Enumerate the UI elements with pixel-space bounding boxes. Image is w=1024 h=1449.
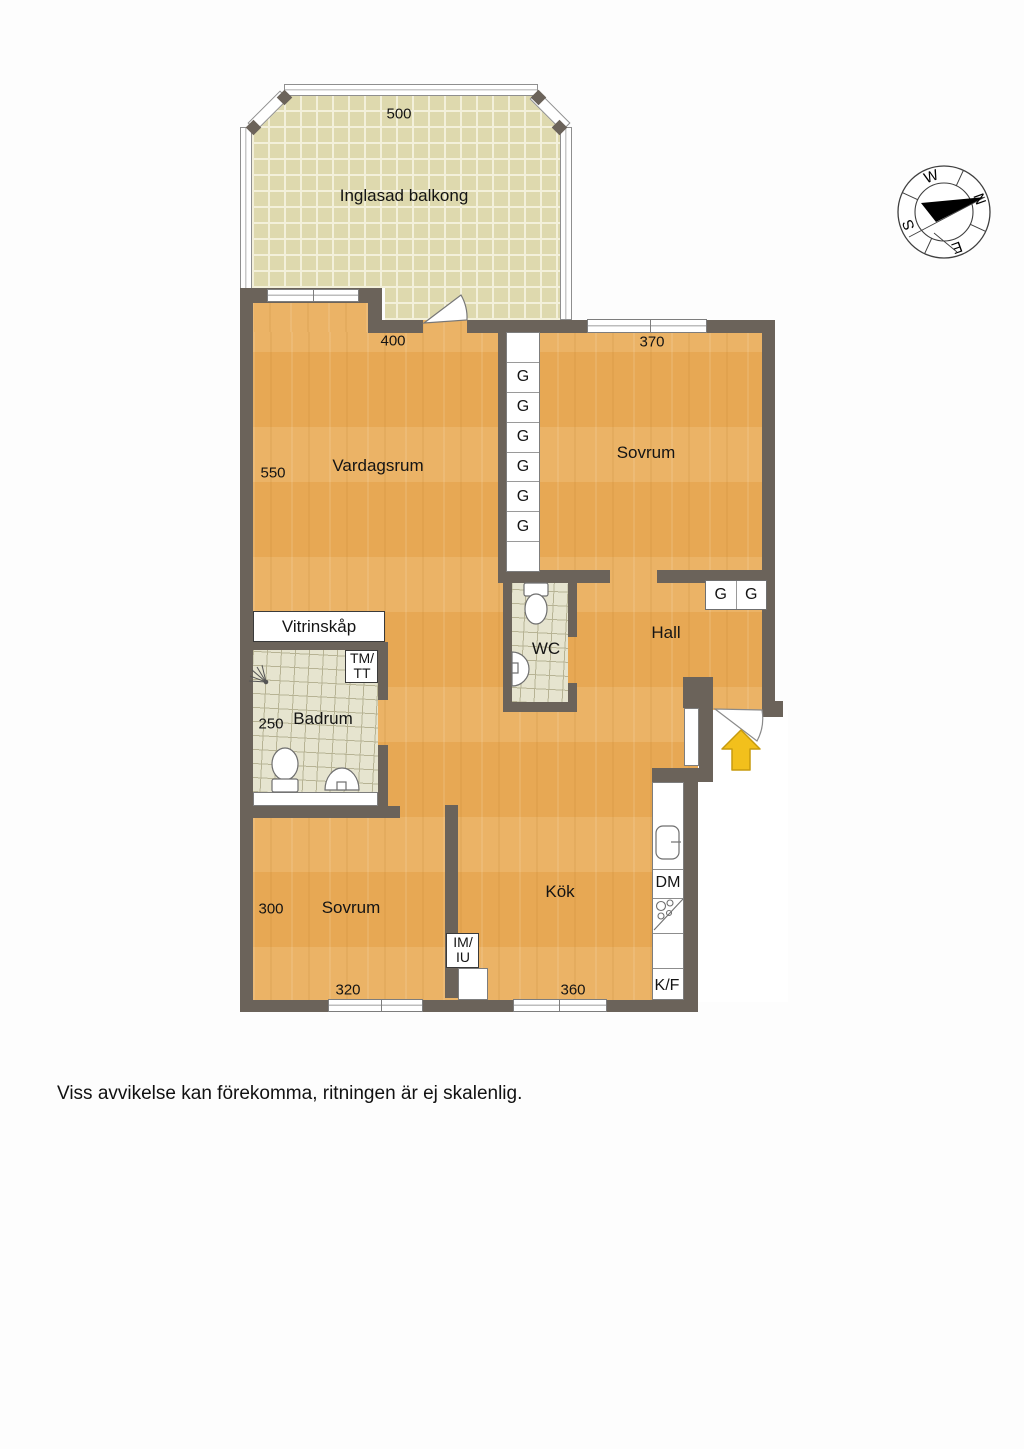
balcony-dim: 500 (386, 106, 411, 123)
balcony-door (424, 295, 467, 323)
vardagsrum-label: Vardagsrum (332, 456, 423, 476)
wc-toilet-icon (524, 583, 548, 624)
fixtures-overlay: N E S W (0, 0, 1024, 1449)
wc-label: WC (532, 639, 560, 659)
sovrum-top-width-dim: 370 (639, 334, 664, 351)
kok-label: Kök (545, 882, 574, 902)
badrum-sink-icon (325, 768, 359, 790)
floorplan-page: Vitrinskåp TM/ TT IM/ IU G G G G G G G G… (0, 0, 1024, 1449)
stove-icon (654, 899, 683, 930)
sovrum-top-label: Sovrum (617, 443, 676, 463)
vardagsrum-width-dim: 400 (380, 333, 405, 350)
balcony-label: Inglasad balkong (340, 186, 469, 206)
kok-width-dim: 360 (560, 982, 585, 999)
disclaimer-text: Viss avvikelse kan förekomma, ritningen … (57, 1083, 522, 1105)
kitchen-sink-icon (656, 826, 681, 859)
compass: N E S W (898, 166, 990, 258)
shower-icon (249, 665, 268, 684)
badrum-depth-dim: 250 (258, 716, 283, 733)
badrum-toilet-icon (272, 748, 298, 792)
wc-sink-icon (512, 652, 529, 686)
badrum-label: Badrum (293, 709, 353, 729)
sovrum-bottom-depth-dim: 300 (258, 901, 283, 918)
sovrum-bottom-label: Sovrum (322, 898, 381, 918)
sovrum-bottom-width-dim: 320 (335, 982, 360, 999)
hall-label: Hall (651, 623, 680, 643)
vardagsrum-depth-dim: 550 (260, 465, 285, 482)
